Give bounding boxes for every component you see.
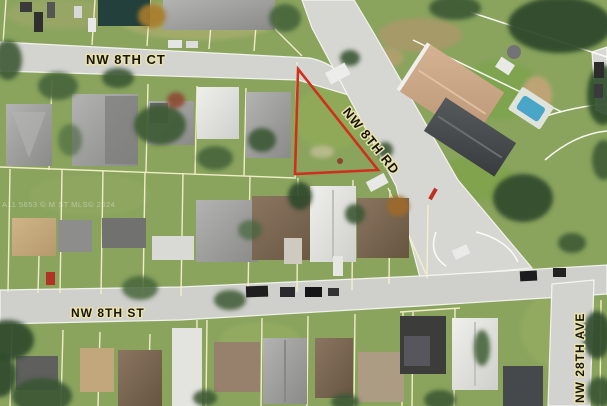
house-roof: [12, 218, 56, 256]
house-roof: [315, 338, 353, 398]
porch: [284, 238, 302, 264]
dome-structure: [507, 45, 521, 59]
house-roof: [102, 218, 146, 248]
street-label-nw-8th-st: NW 8TH ST: [71, 306, 145, 320]
house-addition: [152, 236, 194, 260]
mls-watermark: A11 5653 © M ST MLS© 2024: [2, 200, 115, 209]
roof-facet: [404, 336, 430, 366]
aerial-parcel-map[interactable]: NW 8TH CT NW 8TH RD NW 8TH ST NW 28TH AV…: [0, 0, 607, 406]
house-roof: [163, 0, 275, 30]
house-roof: [118, 350, 162, 406]
house-roof: [358, 352, 404, 402]
roof-facet: [105, 96, 138, 164]
house-roof: [503, 366, 543, 406]
house-roof: [197, 87, 239, 139]
house-roof: [58, 220, 92, 252]
street-label-nw-8th-ct: NW 8TH CT: [86, 52, 166, 67]
street-label-nw-28th-ave: NW 28TH AVE: [573, 313, 587, 403]
house-roof: [214, 342, 260, 392]
red-car: [46, 272, 55, 285]
map-canvas: NW 8TH CT NW 8TH RD NW 8TH ST NW 28TH AV…: [0, 0, 607, 406]
parcel-mark: [337, 158, 343, 164]
house-roof: [80, 348, 114, 392]
